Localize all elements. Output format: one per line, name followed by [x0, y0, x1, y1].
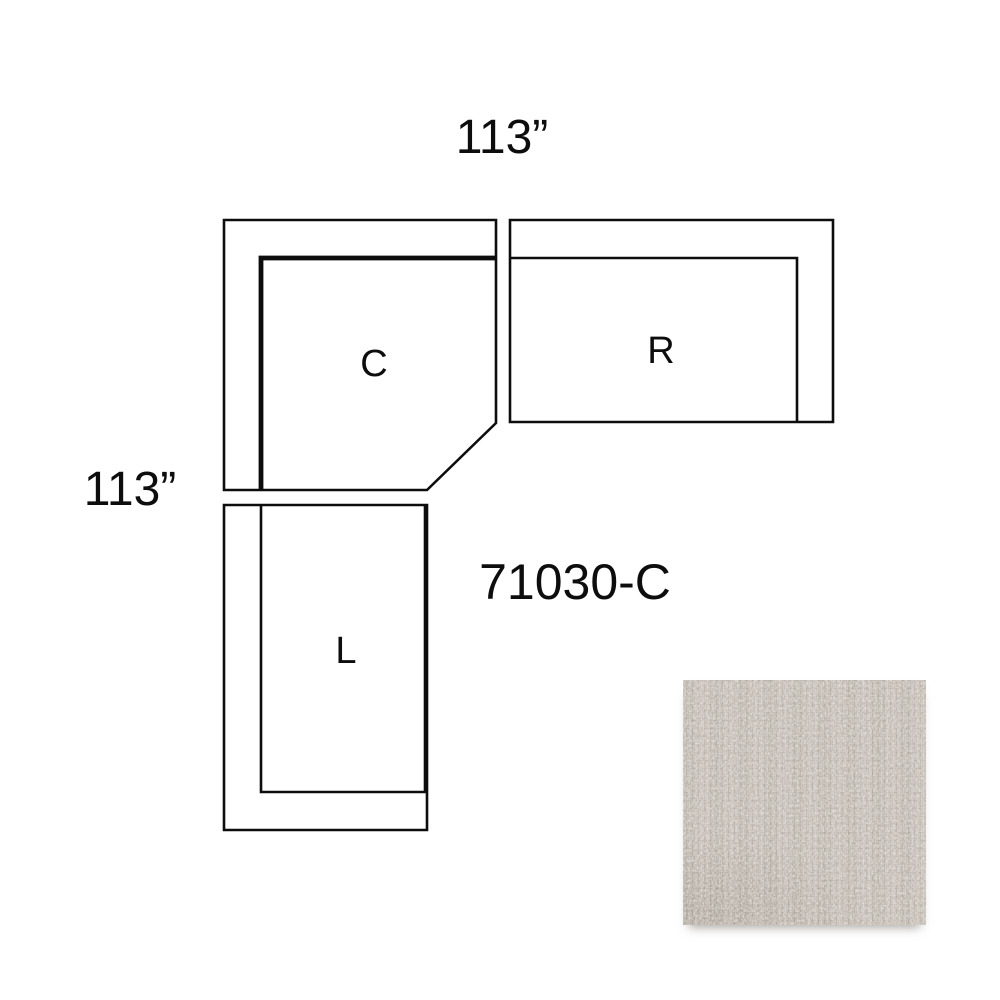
left-piece-label: L [335, 630, 356, 672]
piece-left: L [224, 505, 427, 830]
corner-piece-label: C [360, 343, 387, 385]
left-piece-outline [224, 505, 427, 830]
dimension-label-top: 113” [456, 111, 549, 164]
sectional-diagram-canvas: 113” 113” C R L 71030-C [0, 0, 1000, 1000]
right-piece-label: R [647, 330, 674, 372]
right-piece-outline [510, 220, 833, 422]
fabric-texture [683, 680, 926, 925]
piece-corner: C [224, 220, 496, 490]
piece-right: R [510, 220, 833, 422]
dimension-label-left: 113” [84, 463, 177, 516]
fabric-swatch [683, 680, 926, 925]
model-number-label: 71030-C [479, 554, 671, 610]
